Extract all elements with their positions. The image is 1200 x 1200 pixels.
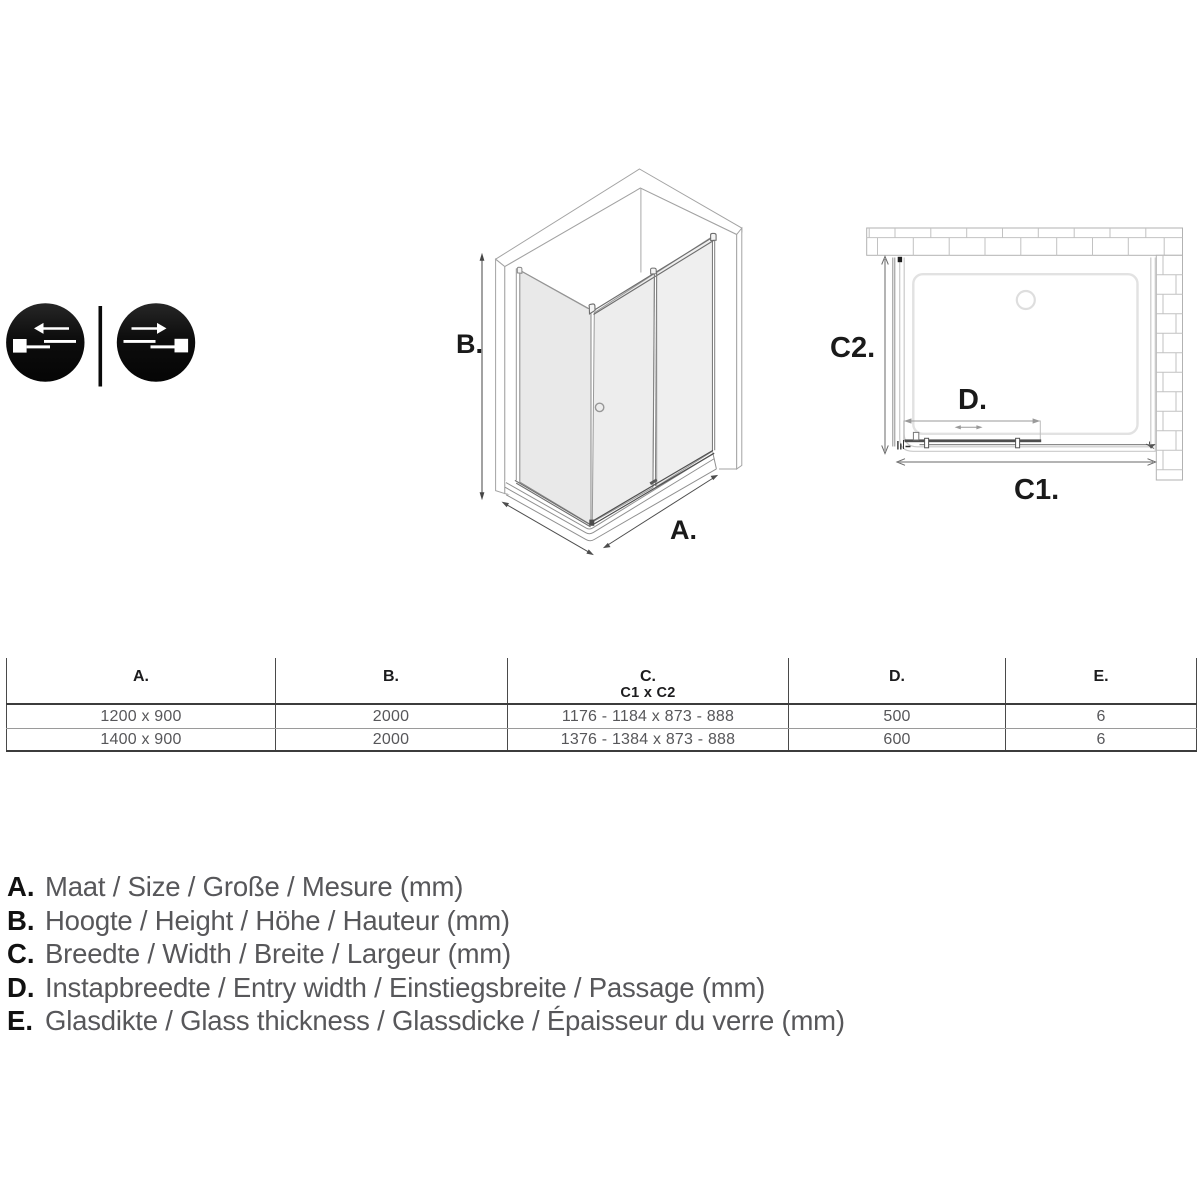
svg-text:A.: A. <box>670 515 697 545</box>
svg-text:D.: D. <box>958 384 987 416</box>
svg-text:C1.: C1. <box>1014 474 1059 506</box>
svg-text:B.: B. <box>456 329 483 359</box>
svg-text:C2.: C2. <box>830 332 875 364</box>
